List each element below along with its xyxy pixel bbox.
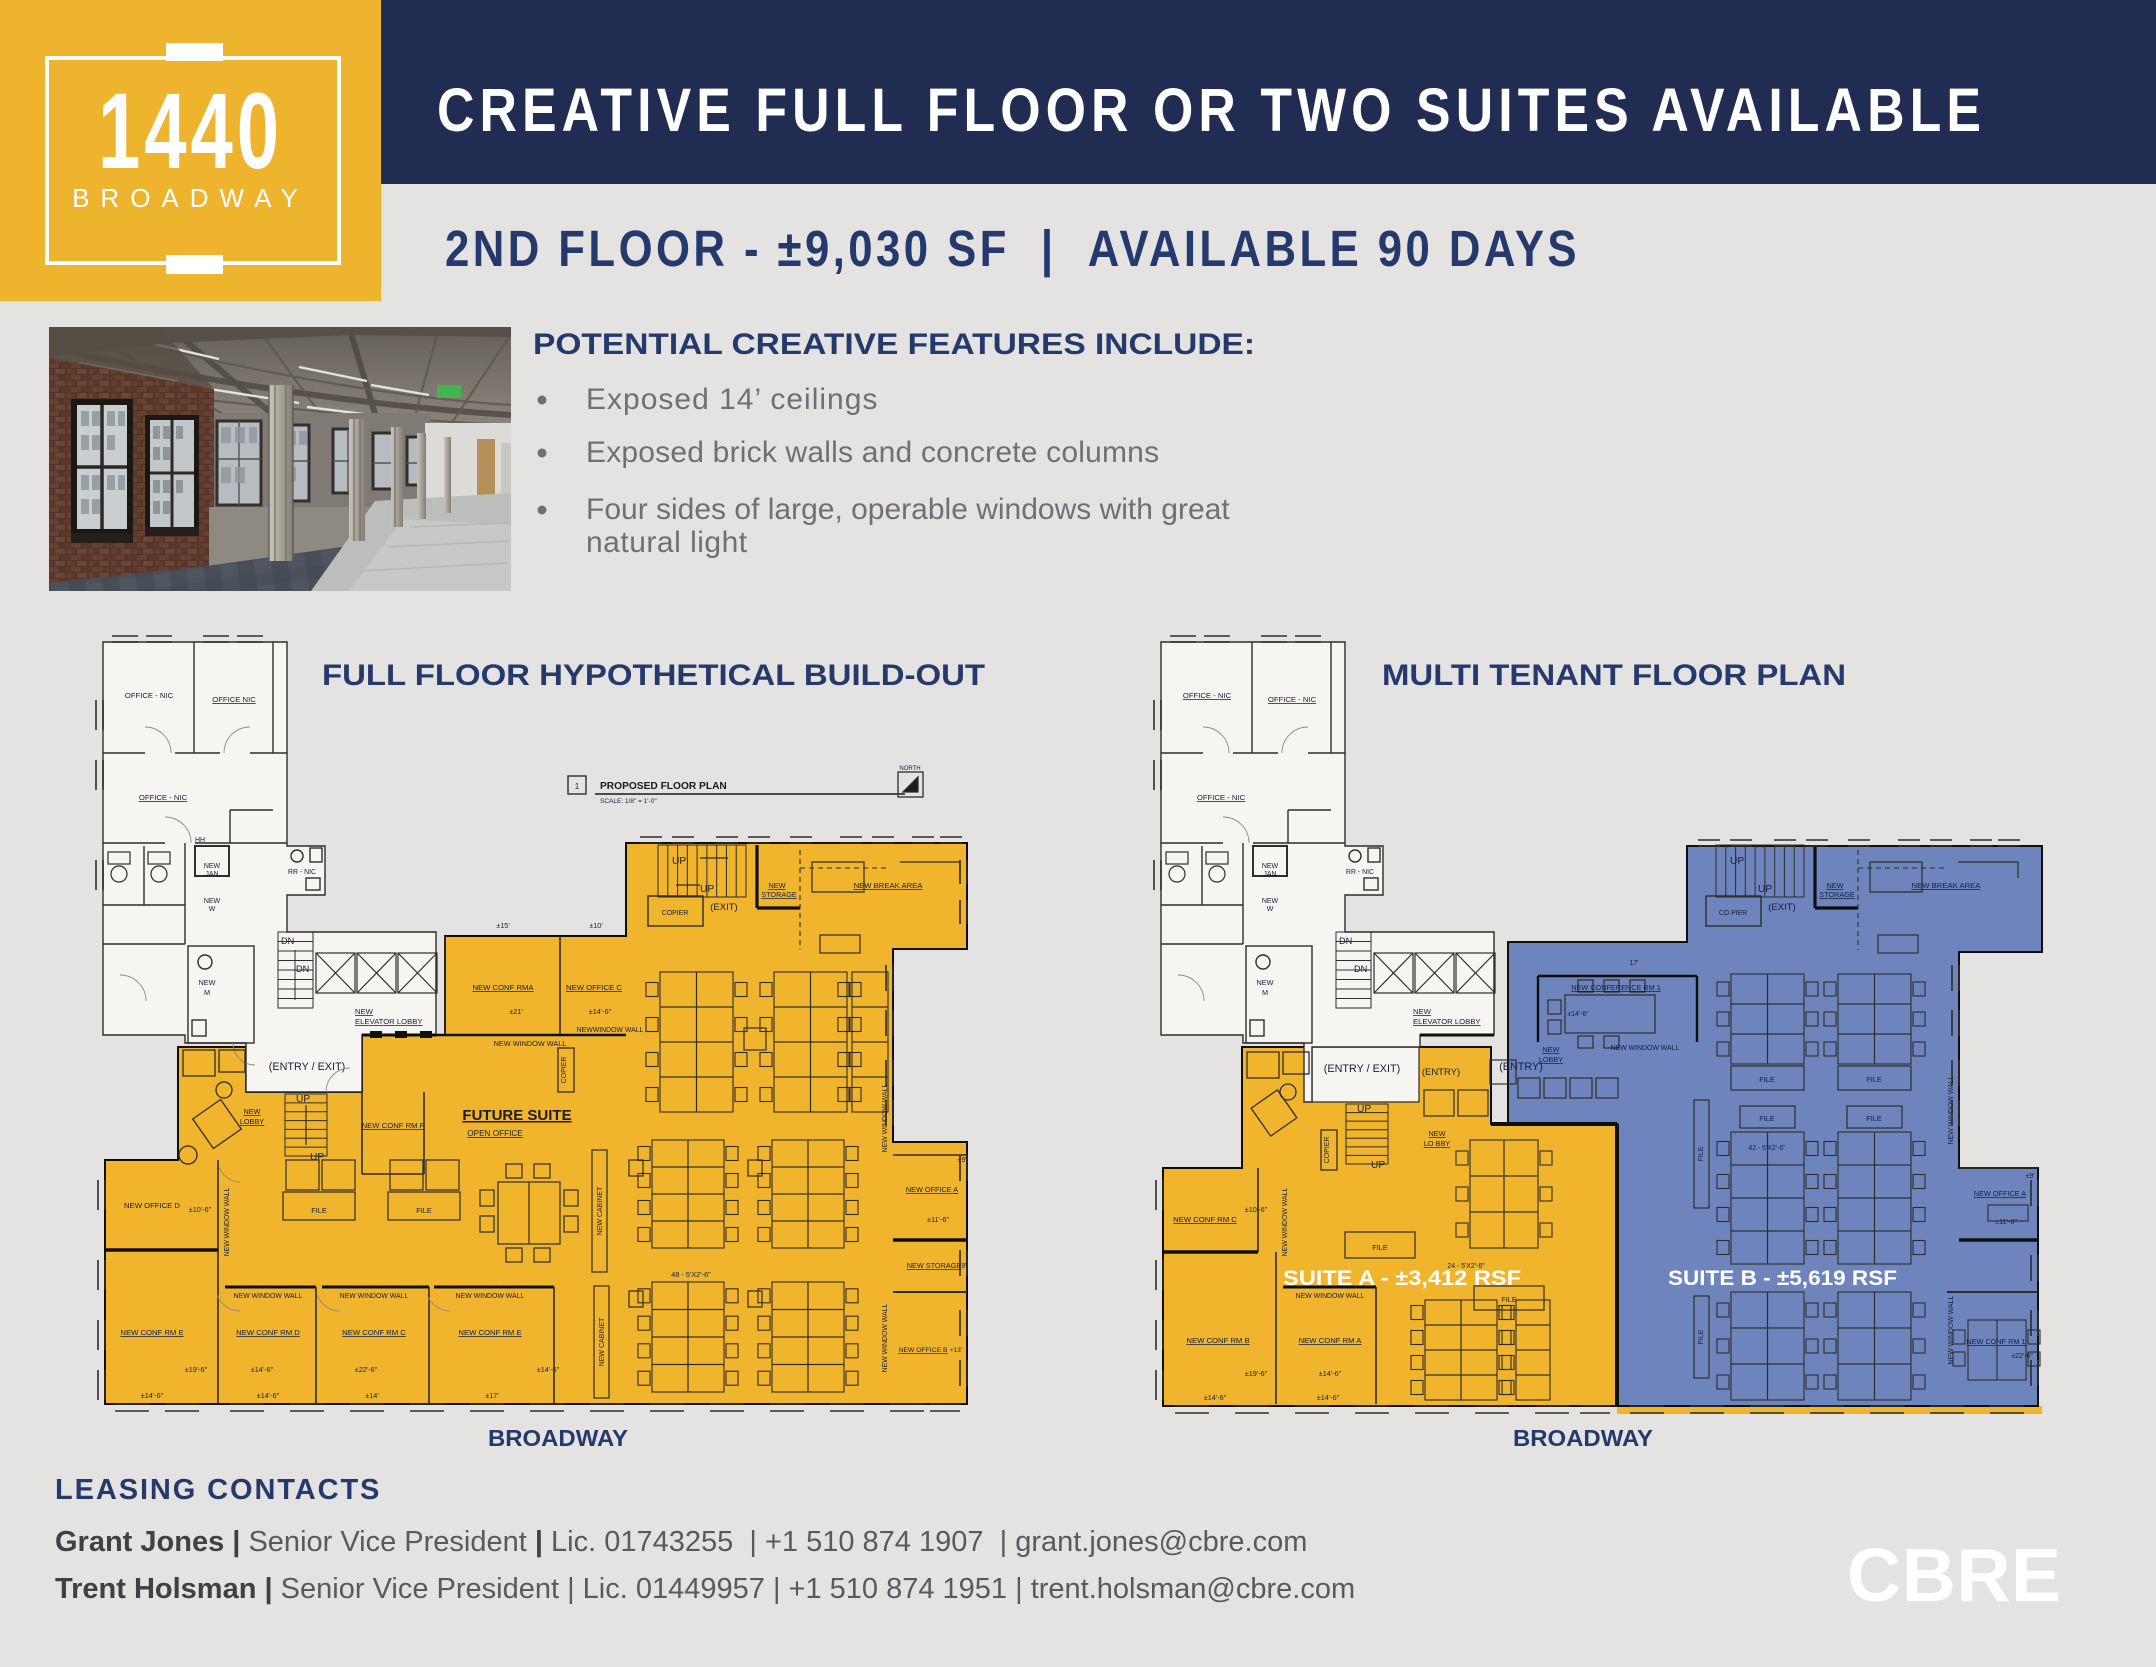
- svg-text:HH: HH: [195, 837, 205, 844]
- svg-text:DN: DN: [1354, 964, 1367, 974]
- svg-text:UP: UP: [672, 856, 686, 867]
- svg-text:FILE: FILE: [1372, 1243, 1388, 1252]
- svg-text:±11'-6": ±11'-6": [927, 1215, 949, 1224]
- svg-text:±10': ±10': [589, 921, 603, 930]
- svg-text:BROADWAY: BROADWAY: [1513, 1425, 1653, 1451]
- svg-text:(ENTRY / EXIT): (ENTRY / EXIT): [1324, 1063, 1400, 1075]
- svg-text:OFFICE - NIC: OFFICE - NIC: [1268, 695, 1317, 704]
- svg-text:NEW WINDOW WALL: NEW WINDOW WALL: [340, 1293, 409, 1300]
- svg-text:±9': ±9': [2026, 1173, 2035, 1180]
- svg-text:±22'-6": ±22'-6": [2011, 1353, 2033, 1360]
- svg-text:42 - 5'X2'-6": 42 - 5'X2'-6": [1748, 1145, 1786, 1152]
- svg-text:FUTURE SUITE: FUTURE SUITE: [462, 1107, 571, 1124]
- svg-text:STORAGE: STORAGE: [761, 890, 797, 899]
- svg-text:NEW: NEW: [1413, 1007, 1432, 1016]
- svg-text:SUITE A - ±3,412 RSF: SUITE A - ±3,412 RSF: [1283, 1267, 1521, 1290]
- svg-text:±14'-6": ±14'-6": [251, 1365, 274, 1374]
- svg-text:±14'-6": ±14'-6": [1317, 1393, 1340, 1402]
- svg-text:OFFICE - NIC: OFFICE - NIC: [1197, 793, 1246, 802]
- svg-text:NEW CABINET: NEW CABINET: [597, 1186, 604, 1235]
- svg-text:NORTH: NORTH: [899, 766, 920, 772]
- svg-text:±14': ±14': [365, 1391, 379, 1400]
- svg-text:NEW CONFERENCE RM 1: NEW CONFERENCE RM 1: [1571, 983, 1661, 992]
- svg-text:JAN: JAN: [1263, 871, 1276, 878]
- svg-text:NEW OFFICE C: NEW OFFICE C: [566, 983, 622, 992]
- svg-text:NEW CONF RM D: NEW CONF RM D: [236, 1328, 300, 1337]
- svg-text:JAN: JAN: [205, 871, 218, 878]
- svg-text:FILE: FILE: [1759, 1075, 1775, 1084]
- svg-text:±9': ±9': [958, 1157, 967, 1164]
- svg-text:MULTI TENANT FLOOR PLAN: MULTI TENANT FLOOR PLAN: [1382, 659, 1846, 692]
- svg-text:(EXIT): (EXIT): [1768, 902, 1795, 913]
- svg-text:UP: UP: [1758, 884, 1772, 895]
- svg-text:FILE: FILE: [311, 1206, 327, 1215]
- svg-text:LO BBY: LO BBY: [1424, 1139, 1450, 1148]
- svg-text:NEW CONF RM C: NEW CONF RM C: [342, 1328, 406, 1337]
- svg-text:PROPOSED FLOOR PLAN: PROPOSED FLOOR PLAN: [600, 781, 727, 792]
- svg-text:±14'-6": ±14'-6": [1204, 1393, 1227, 1402]
- svg-text:NEW OFFICE D: NEW OFFICE D: [124, 1201, 180, 1210]
- svg-text:NEW: NEW: [355, 1007, 374, 1016]
- svg-text:±14'-6": ±14'-6": [1319, 1369, 1342, 1378]
- svg-text:NEW CONF RM B: NEW CONF RM B: [1186, 1336, 1249, 1345]
- svg-text:STORAGE: STORAGE: [1819, 890, 1855, 899]
- svg-text:±14'-6": ±14'-6": [1567, 1011, 1589, 1018]
- svg-text:NEW: NEW: [1826, 881, 1843, 890]
- svg-text:OFFICE - NIC: OFFICE - NIC: [1183, 691, 1232, 700]
- svg-text:NEW WINDOW WALL: NEW WINDOW WALL: [1296, 1293, 1365, 1300]
- svg-text:FILE: FILE: [1698, 1146, 1705, 1161]
- svg-text:FILE: FILE: [1698, 1329, 1705, 1344]
- svg-text:COPIER: COPIER: [662, 910, 688, 917]
- svg-text:LOBBY: LOBBY: [240, 1117, 264, 1126]
- svg-text:NEW STORAGE: NEW STORAGE: [907, 1261, 962, 1270]
- svg-text:COPIER: COPIER: [561, 1057, 568, 1084]
- svg-text:NEW CONF RM 1: NEW CONF RM 1: [1966, 1337, 2025, 1346]
- svg-text:1: 1: [575, 782, 580, 791]
- svg-text:SUITE B - ±5,619 RSF: SUITE B - ±5,619 RSF: [1668, 1267, 1897, 1290]
- svg-text:NEW: NEW: [243, 1107, 260, 1116]
- svg-text:UP: UP: [1357, 1104, 1371, 1115]
- svg-text:UP: UP: [296, 1094, 310, 1105]
- svg-text:FILE: FILE: [416, 1206, 432, 1215]
- svg-text:NEW: NEW: [204, 898, 221, 905]
- svg-text:COPIER: COPIER: [1324, 1137, 1331, 1164]
- svg-text:OFFICE NIC: OFFICE NIC: [212, 695, 256, 704]
- svg-text:DN: DN: [1339, 936, 1352, 946]
- svg-text:NEW CABINET: NEW CABINET: [599, 1317, 606, 1366]
- svg-text:RR - NIC: RR - NIC: [1346, 869, 1374, 876]
- svg-text:ELEVATOR LOBBY: ELEVATOR LOBBY: [1413, 1017, 1481, 1026]
- svg-text:(ENTRY / EXIT): (ENTRY / EXIT): [269, 1061, 345, 1073]
- svg-text:17': 17': [1630, 960, 1639, 967]
- svg-text:±19'-6": ±19'-6": [185, 1365, 208, 1374]
- svg-text:NEW: NEW: [768, 881, 785, 890]
- svg-text:NEW: NEW: [198, 978, 215, 987]
- svg-text:+13': +13': [950, 1347, 962, 1354]
- svg-text:NEW CONF RM C: NEW CONF RM C: [1173, 1215, 1237, 1224]
- svg-text:(ENTRY): (ENTRY): [1499, 1061, 1543, 1073]
- svg-text:M: M: [1262, 988, 1268, 997]
- svg-text:NEW CONF RM E: NEW CONF RM E: [458, 1328, 521, 1337]
- svg-text:NEW: NEW: [204, 863, 221, 870]
- svg-text:NEW: NEW: [1262, 898, 1279, 905]
- svg-text:DN: DN: [296, 964, 309, 974]
- svg-text:±14'-6": ±14'-6": [257, 1391, 280, 1400]
- svg-text:(ENTRY): (ENTRY): [1422, 1067, 1460, 1078]
- svg-text:OPEN OFFICE: OPEN OFFICE: [467, 1129, 523, 1138]
- svg-text:NEW WINDOW WALL: NEW WINDOW WALL: [224, 1188, 231, 1257]
- svg-text:48 - 5'X2'-6": 48 - 5'X2'-6": [671, 1270, 711, 1279]
- svg-text:NEW WINDOW WALL: NEW WINDOW WALL: [234, 1293, 303, 1300]
- svg-text:OFFICE - NIC: OFFICE - NIC: [139, 793, 188, 802]
- svg-text:FULL FLOOR HYPOTHETICAL BUILD-: FULL FLOOR HYPOTHETICAL BUILD-OUT: [322, 659, 985, 692]
- svg-text:±14'-6": ±14'-6": [589, 1007, 612, 1016]
- svg-text:(EXIT): (EXIT): [710, 902, 737, 913]
- svg-text:±22'-6": ±22'-6": [355, 1365, 378, 1374]
- svg-text:NEW CONF RM F: NEW CONF RM F: [362, 1121, 425, 1130]
- svg-text:±10'-6": ±10'-6": [1245, 1205, 1268, 1214]
- svg-text:UP: UP: [700, 884, 714, 895]
- svg-text:±21': ±21': [509, 1007, 523, 1016]
- svg-text:NEW: NEW: [1262, 863, 1279, 870]
- svg-text:NEW OFFICE A: NEW OFFICE A: [1974, 1189, 2026, 1198]
- svg-text:FILE: FILE: [1501, 1295, 1517, 1304]
- svg-text:NEW WINDOW WALL: NEW WINDOW WALL: [1611, 1045, 1680, 1052]
- svg-text:NEW WINDOW WALL: NEW WINDOW WALL: [456, 1293, 525, 1300]
- svg-text:W: W: [1267, 906, 1274, 913]
- svg-text:UP: UP: [1371, 1160, 1385, 1171]
- svg-text:RR - NIC: RR - NIC: [288, 869, 316, 876]
- svg-text:M: M: [204, 988, 210, 997]
- svg-text:OFFICE - NIC: OFFICE - NIC: [125, 691, 174, 700]
- svg-text:LOBBY: LOBBY: [1539, 1055, 1563, 1064]
- svg-text:±14'-6": ±14'-6": [141, 1391, 164, 1400]
- svg-text:NEW CONF RM A: NEW CONF RM A: [1299, 1336, 1363, 1345]
- svg-text:FILE: FILE: [1759, 1114, 1775, 1123]
- svg-text:W: W: [209, 906, 216, 913]
- svg-text:DN: DN: [281, 936, 294, 946]
- svg-text:NEW CONF RM E: NEW CONF RM E: [120, 1328, 183, 1337]
- svg-text:UP: UP: [1730, 856, 1744, 867]
- svg-text:FILE: FILE: [1866, 1075, 1882, 1084]
- svg-text:FILE: FILE: [1866, 1114, 1882, 1123]
- svg-text:NEW: NEW: [1256, 978, 1273, 987]
- svg-text:±15': ±15': [496, 921, 510, 930]
- svg-text:NEW: NEW: [1428, 1129, 1445, 1138]
- svg-text:NEW WINDOW WALL: NEW WINDOW WALL: [1282, 1188, 1289, 1257]
- svg-text:NEW OFFICE B: NEW OFFICE B: [898, 1347, 948, 1354]
- svg-text:BROADWAY: BROADWAY: [488, 1425, 628, 1451]
- svg-text:NEW WINDOW WALL: NEW WINDOW WALL: [882, 1304, 889, 1373]
- svg-text:±17': ±17': [485, 1391, 499, 1400]
- svg-text:NEW WINDOW WALL: NEW WINDOW WALL: [494, 1039, 567, 1048]
- svg-text:SCALE: 1/8" = 1'-0": SCALE: 1/8" = 1'-0": [600, 798, 657, 805]
- svg-text:±19'-6": ±19'-6": [1245, 1369, 1268, 1378]
- svg-text:NEW CONF RMA: NEW CONF RMA: [472, 983, 534, 992]
- svg-text:NEWWINDOW WALL: NEWWINDOW WALL: [577, 1027, 644, 1034]
- svg-text:NEW OFFICE A: NEW OFFICE A: [906, 1185, 958, 1194]
- svg-text:CO PIER: CO PIER: [1719, 910, 1747, 917]
- svg-text:±9': ±9': [958, 1263, 967, 1270]
- svg-text:±14'-6": ±14'-6": [537, 1365, 560, 1374]
- svg-text:ELEVATOR LOBBY: ELEVATOR LOBBY: [355, 1017, 423, 1026]
- svg-text:±10'-6": ±10'-6": [189, 1205, 212, 1214]
- svg-text:NEW: NEW: [1542, 1045, 1559, 1054]
